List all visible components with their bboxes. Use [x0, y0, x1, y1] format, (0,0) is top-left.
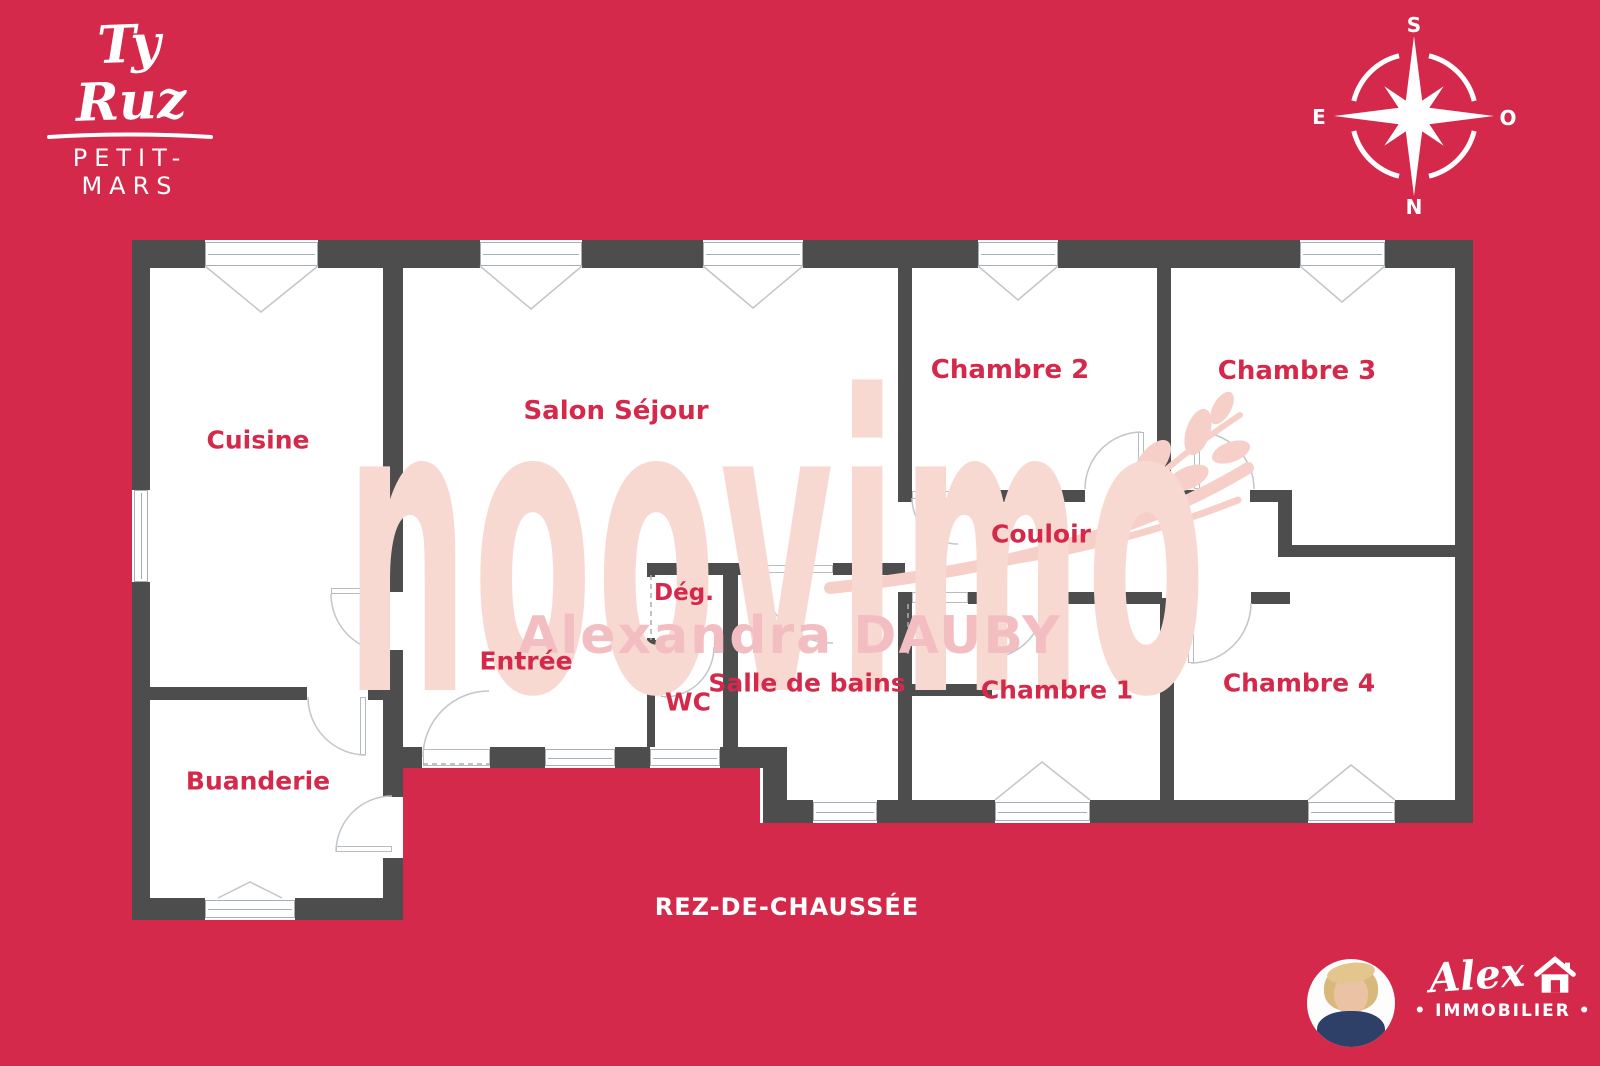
wall [1290, 545, 1455, 557]
door-leaf [336, 846, 392, 852]
door-leaf [423, 749, 490, 766]
window [134, 490, 148, 582]
brand-block: Ty Ruz PETIT-MARS [38, 16, 222, 200]
wall [582, 240, 703, 268]
room-label-salle-de-bains: Salle de bains [708, 669, 905, 698]
room-floor [760, 240, 1473, 823]
wall [647, 563, 760, 575]
window [813, 802, 877, 821]
wall [383, 268, 403, 592]
door-leaf [1194, 432, 1200, 489]
room-label-salon-sejour: Salon Séjour [523, 396, 708, 426]
window [650, 749, 720, 766]
wall [898, 592, 912, 604]
door-leaf [912, 592, 968, 603]
room-label-chambre-3: Chambre 3 [1218, 356, 1376, 386]
room-label-cuisine: Cuisine [207, 426, 310, 455]
wall [1058, 240, 1300, 268]
wall [877, 800, 995, 823]
room-label-degagement: Dég. [654, 580, 714, 606]
window [480, 242, 582, 266]
wall [905, 684, 985, 696]
wall [647, 563, 655, 577]
wall [490, 747, 545, 768]
compass-label-west: O [1499, 106, 1516, 130]
wall [763, 800, 813, 823]
compass-rose-icon: S N E O [1312, 14, 1516, 218]
floor-level-title: REZ-DE-CHAUSSÉE [655, 893, 919, 921]
door-leaf [331, 588, 389, 594]
compass-label-north: N [1406, 195, 1423, 218]
door-leaf [912, 491, 958, 499]
door-leaf [1188, 603, 1194, 663]
window [1300, 242, 1385, 266]
wall [383, 858, 403, 920]
room-label-chambre-2: Chambre 2 [931, 355, 1089, 385]
wall [1251, 592, 1290, 604]
door-leaf [1138, 432, 1144, 489]
wall [1157, 268, 1171, 490]
agency-script-name: Alex [1428, 949, 1527, 1003]
wall [318, 240, 480, 268]
brand-underline-swoosh [45, 132, 215, 140]
window [205, 900, 295, 918]
brand-location: PETIT-MARS [38, 144, 222, 200]
compass-label-east: E [1312, 105, 1326, 129]
flyer-canvas: Ty Ruz PETIT-MARS S N E O noo [0, 0, 1600, 1066]
room-label-entree: Entrée [479, 647, 572, 676]
room-label-chambre-4: Chambre 4 [1223, 669, 1375, 698]
room-label-chambre-1: Chambre 1 [981, 676, 1133, 705]
wall [132, 898, 205, 920]
watermark-agent-name: Alexandra DAUBY [518, 606, 1062, 666]
window [978, 242, 1058, 266]
room-label-buanderie: Buanderie [186, 767, 330, 796]
agent-avatar [1307, 959, 1395, 1047]
wall [383, 650, 403, 797]
wall [898, 688, 912, 800]
wall [368, 687, 383, 700]
wall [803, 240, 978, 268]
room-label-wc: WC [665, 688, 711, 717]
wall [150, 687, 307, 700]
window [703, 242, 803, 266]
house-icon [1533, 956, 1577, 996]
wall [1090, 800, 1308, 823]
agency-subtitle: • IMMOBILIER • [1408, 1001, 1598, 1021]
wall [403, 747, 422, 768]
window [205, 242, 318, 266]
wall [958, 490, 1085, 502]
avatar-torso [1317, 1011, 1385, 1047]
window [1308, 802, 1395, 821]
door-leaf [360, 697, 366, 755]
wall [1043, 592, 1162, 604]
wall [132, 240, 150, 490]
wall [1455, 240, 1473, 823]
wall [968, 592, 988, 604]
wall [833, 563, 905, 575]
compass-label-south: S [1407, 14, 1421, 37]
wall [898, 268, 912, 502]
wall [1140, 490, 1198, 502]
wall [615, 747, 650, 768]
agency-logo: Alex • IMMOBILIER • [1408, 952, 1598, 1021]
door-leaf [760, 565, 833, 573]
room-label-couloir: Couloir [991, 520, 1091, 549]
room-floor [132, 240, 403, 920]
brand-name: Ty Ruz [36, 13, 224, 134]
wall [132, 582, 150, 920]
wall [1160, 598, 1174, 800]
window [995, 802, 1090, 821]
window [545, 749, 615, 766]
